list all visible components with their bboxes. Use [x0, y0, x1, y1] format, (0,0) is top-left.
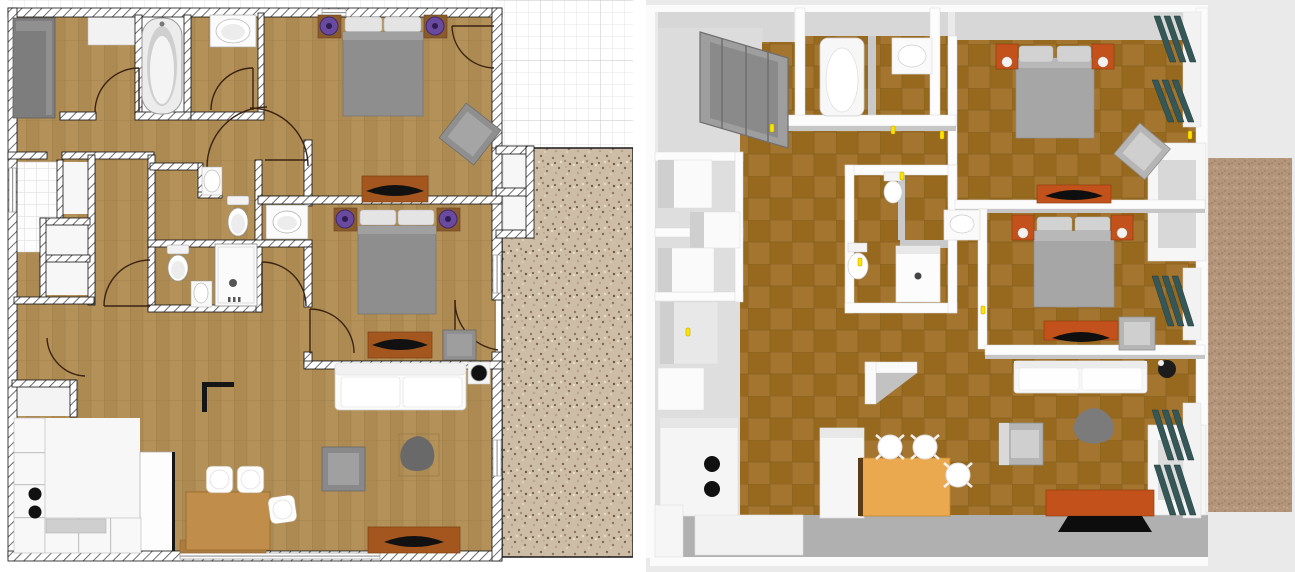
ceiling-light-4	[1188, 131, 1192, 139]
side-table-top	[471, 365, 487, 381]
kitchen-3d-cabinets-top	[660, 418, 738, 428]
closet-terrace-inner-1	[1158, 160, 1196, 200]
terrace-carpet	[1206, 158, 1292, 512]
wall-closet-col-right	[88, 155, 95, 305]
chair-3d-3-seat	[946, 463, 970, 487]
plant-table-highlight	[1158, 360, 1164, 366]
bathtub-basin-inner	[150, 36, 174, 104]
wall-h2-right	[62, 152, 154, 159]
wall-bath-right	[184, 15, 191, 115]
toilet2-bowl-inner	[171, 261, 185, 279]
lamp-3d-b1-r	[1098, 57, 1108, 67]
ceiling-light-5	[900, 172, 904, 180]
toilet2-tank	[167, 245, 189, 254]
wall-face-bathroom	[798, 12, 948, 40]
wall-bath-left	[795, 8, 805, 120]
window-bottom-line	[180, 556, 380, 557]
toilet-3d-2-tank	[848, 243, 867, 252]
wall-sinkroom-right	[258, 13, 264, 115]
bed1-3d-body	[1016, 58, 1094, 138]
wall-entry-bottom	[14, 297, 94, 304]
bed1-3d-pillow-l	[1019, 46, 1053, 62]
render-3d-panel	[646, 0, 1295, 572]
sofa-cushion-left	[341, 377, 400, 407]
bathtub-tap	[160, 22, 165, 27]
kitchen-3d-bottom-counter	[695, 515, 803, 555]
wall-below-sinkroom	[191, 112, 264, 120]
sofa-cushion-right	[403, 377, 462, 407]
toilet-3d-2-bowl	[848, 253, 868, 279]
kitchen-cabinet-column	[14, 418, 45, 553]
bed2-3d-pillow-l	[1037, 217, 1072, 233]
floor-plan-2d-panel	[8, 0, 646, 572]
bed2-3d-pillow-r	[1075, 217, 1110, 233]
cabinet-tall-left	[658, 368, 704, 410]
closet-box-2-face	[690, 212, 704, 248]
floor-wood-main	[740, 118, 1198, 515]
dining-chair-2-seat	[241, 470, 260, 489]
ceiling-light-8	[981, 306, 985, 314]
sink-shower-room-basin	[194, 283, 208, 303]
chest-bedroom2-inner	[447, 334, 472, 356]
dining-chair-3-seat	[273, 500, 292, 519]
kitchen-cabinet-divider-1	[14, 452, 45, 453]
alcove-floor	[14, 386, 74, 416]
kitchen-island-wall	[172, 452, 175, 553]
closet-nook-floor	[88, 17, 138, 45]
lamp-3d-b1-l	[1002, 57, 1012, 67]
toilet1-tank	[227, 196, 249, 205]
bed2-3d-fold	[1034, 231, 1114, 241]
wall-bed-divider-shade	[955, 209, 1205, 213]
armchair-living-cushion	[328, 453, 359, 485]
armchair-3d-bedroom2-cushion	[1124, 322, 1150, 345]
lamp-b1-left-center	[326, 23, 332, 29]
grid-area-major	[495, 0, 635, 148]
bed1-fold	[343, 32, 423, 40]
vanity-3d-basin	[950, 215, 974, 233]
wall-living-divider-shade	[985, 355, 1205, 359]
floor-plan-comparison	[0, 0, 1295, 572]
bed1-body	[343, 32, 423, 116]
wall-below-wardrobe	[60, 112, 96, 120]
shower-drain	[229, 279, 237, 287]
small-sink-basin	[204, 170, 220, 192]
ceiling-light-2	[891, 126, 895, 134]
bed2-pillow-right	[398, 210, 434, 225]
wall-bathcluster-left	[845, 165, 854, 313]
kitchen-3d-left-cabinet	[655, 505, 683, 557]
window-left-line	[12, 168, 13, 212]
closet-box-3-face	[658, 248, 672, 292]
wall-leftcol-1	[655, 152, 743, 161]
ceiling-light-7	[686, 328, 690, 336]
wall-bathroom1-top	[150, 163, 200, 170]
toilet-3d-small-bowl	[884, 181, 902, 203]
window-top-line	[322, 12, 346, 13]
armchair-3d-living-cushion	[1011, 430, 1039, 458]
lamp-b2-left-center	[342, 216, 348, 222]
armchair-3d-living-arm	[999, 423, 1009, 465]
wall-stub-3d-v	[865, 362, 876, 404]
closet-box-1-face	[658, 160, 674, 208]
wall-alcove-right	[70, 380, 77, 417]
bathtub-3d-basin	[826, 48, 858, 112]
stove-burner-2	[29, 506, 42, 519]
closet-b-floor	[46, 225, 88, 255]
dining-chair-1-seat	[210, 470, 229, 489]
bed2-pillow-left	[360, 210, 396, 225]
wall-living-divider	[985, 345, 1205, 355]
bed1-pillow-right	[384, 17, 421, 32]
closet-c-floor	[46, 262, 88, 295]
bed2-body	[358, 226, 436, 314]
closet-a-floor	[62, 162, 88, 214]
wall-h2-left	[8, 152, 47, 159]
terrace-closet-floor-1	[503, 154, 527, 189]
dining-3d-table	[860, 458, 950, 516]
window-right-1-line	[497, 255, 498, 293]
wall-leftcol-3	[655, 292, 743, 301]
terrace-closet-wall-right	[526, 146, 534, 238]
toilet1-bowl-inner	[231, 214, 245, 234]
chair-3d-2-seat	[913, 435, 937, 459]
wall-closet-col-left	[40, 218, 46, 304]
shower-3d-drain	[915, 273, 922, 280]
washroom-sink-inner	[277, 216, 297, 230]
wall-bathroom1-left	[148, 155, 155, 310]
kitchen-3d-island-top	[820, 428, 864, 438]
wall-bathcluster-bottom	[845, 303, 957, 313]
bed2-fold	[358, 226, 436, 234]
chair-3d-1-seat	[878, 435, 902, 459]
wall-stub-l-vertical	[202, 382, 207, 412]
grid-top-strip	[8, 0, 502, 8]
lamp-b2-right-center	[445, 216, 451, 222]
kitchen-cabinet-divider-3	[14, 517, 45, 518]
sofa-3d-cushion-l	[1019, 368, 1079, 390]
shower-tap-3	[238, 297, 241, 302]
kitchen-3d-cabinets	[660, 418, 738, 516]
sink-3d-top-basin	[898, 45, 926, 67]
toilet-3d-small-tank	[884, 172, 902, 181]
shower-tray	[215, 244, 257, 306]
window-right-2-line	[497, 440, 498, 476]
ceiling-light-1	[770, 124, 774, 132]
dining-table	[186, 492, 270, 550]
wall-closet-c-top	[40, 255, 90, 262]
wall-bath-divider	[868, 36, 876, 120]
panel-gutter	[633, 0, 646, 572]
kitchen-cabinet-divider-2	[14, 484, 45, 485]
closet-box-4-face	[660, 302, 674, 364]
sink-basin-top-inner	[221, 24, 245, 40]
wall-closet-a-left	[57, 160, 63, 218]
stove-3d-burner-2	[704, 481, 720, 497]
shower-3d-top-face	[896, 246, 940, 254]
closet-terrace-inner-2	[1158, 208, 1196, 248]
bed1-3d-pillow-r	[1057, 46, 1091, 62]
kitchen-island	[140, 452, 174, 553]
kitchen-sink-counter	[46, 519, 106, 533]
bottom-wall-band	[650, 557, 1208, 566]
wardrobe-side-shelf	[46, 21, 52, 115]
left-wall-band	[646, 5, 655, 558]
bed1-pillow-left	[345, 17, 382, 32]
ceiling-light-3	[940, 131, 944, 139]
dining-3d-table-edge	[858, 458, 863, 516]
ceiling-light-6	[858, 258, 862, 266]
lamp-b1-right-center	[432, 23, 438, 29]
stove-burner-1	[29, 488, 42, 501]
lamp-3d-b2-l	[1018, 228, 1028, 238]
wall-alcove-top	[12, 380, 76, 387]
tv-stand-3d-living	[1046, 490, 1154, 516]
terrace-closet-floor-2	[503, 196, 527, 230]
kitchen-counter-divider-2	[110, 518, 111, 553]
scene-svg	[0, 0, 1295, 572]
kitchen-3d-island	[820, 428, 864, 518]
sofa-backrest	[335, 363, 466, 375]
stove-3d-burner-1	[704, 456, 720, 472]
sofa-3d-cushion-r	[1082, 368, 1142, 390]
tv-3d-living	[1058, 516, 1152, 532]
shower-tap-2	[233, 297, 236, 302]
shower-tap-1	[228, 297, 231, 302]
lamp-3d-b2-r	[1117, 228, 1127, 238]
wall-closet-b-top	[40, 218, 90, 225]
bed2-3d-body	[1034, 231, 1114, 307]
